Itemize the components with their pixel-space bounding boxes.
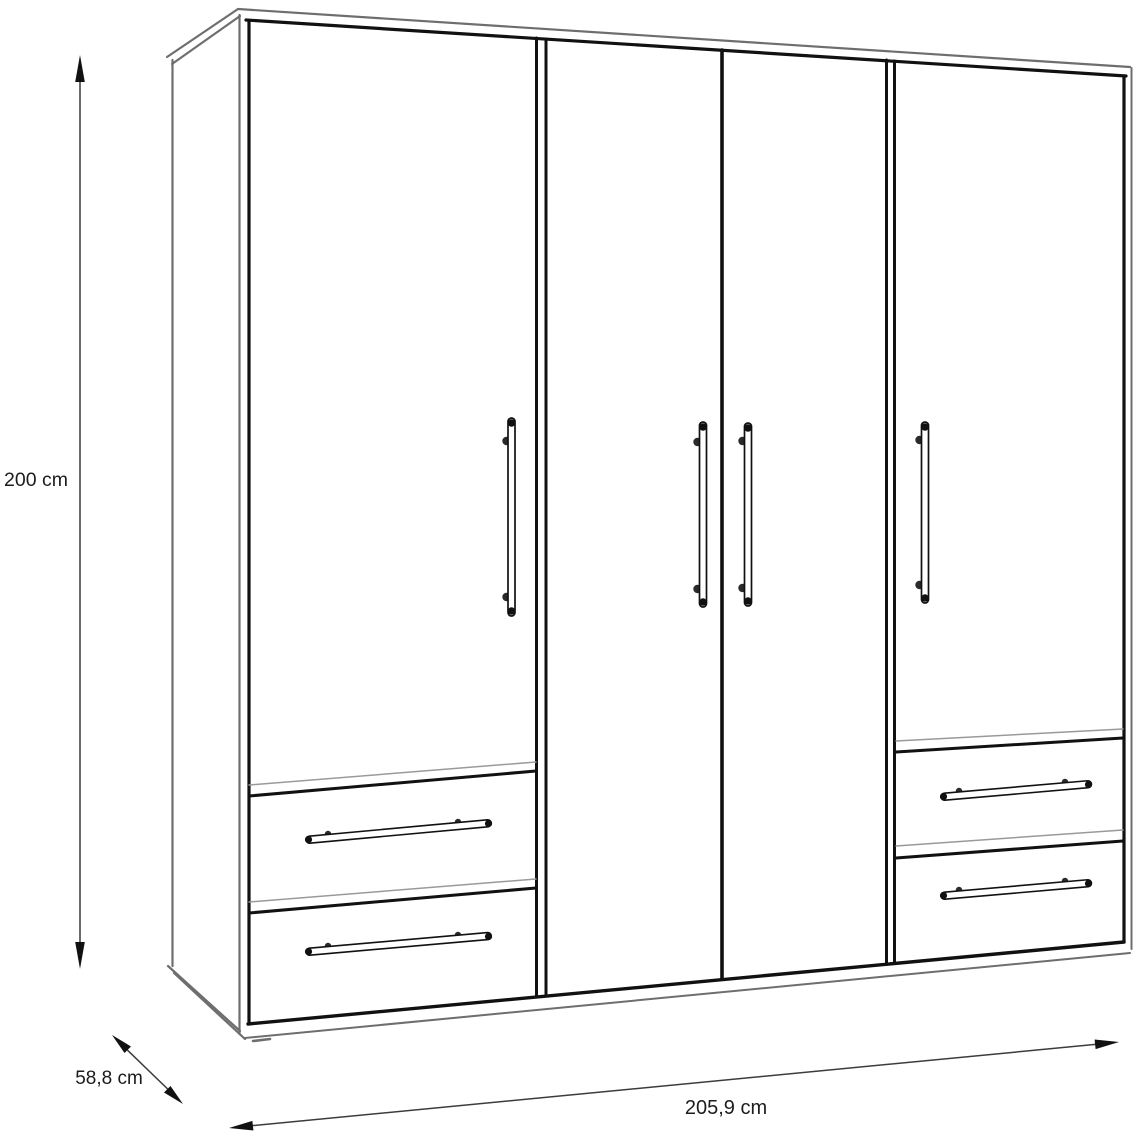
drawer-left-top-handle [305, 819, 492, 844]
drawer-left-divider [249, 888, 536, 913]
drawer-right-bottom-handle [940, 878, 1092, 900]
depth-dimension: 58,8 cm [75, 1035, 183, 1104]
front-foot [253, 1039, 270, 1041]
drawer-right-top-edge [896, 738, 1123, 752]
door-divisions [537, 38, 895, 997]
depth-label: 58,8 cm [75, 1068, 143, 1089]
front-frame-edges [249, 22, 1132, 1023]
door-2-handle [693, 422, 706, 607]
drawer-left-bottom-handle [305, 932, 492, 956]
height-arrowhead-top [75, 55, 85, 82]
drawer-right-top-handle [940, 779, 1092, 801]
side-panel [167, 9, 245, 1039]
width-dimension: 205,9 cm [229, 1040, 1119, 1131]
wardrobe-dimension-diagram: 200 cm 58,8 cm 205,9 cm [0, 0, 1136, 1136]
height-dimension: 200 cm [4, 55, 85, 969]
door-4-handle [915, 422, 928, 603]
wardrobe-drawing [167, 9, 1132, 1041]
height-label: 200 cm [4, 469, 68, 491]
top-panel [238, 9, 1130, 76]
base-plinth [245, 942, 1130, 1041]
height-arrowhead-bottom [75, 942, 85, 969]
door-1-handle [502, 418, 515, 616]
drawing-canvas: 200 cm 58,8 cm 205,9 cm [0, 0, 1136, 1136]
width-arrowhead-right [1095, 1040, 1119, 1050]
drawer-left-top-edge [249, 771, 536, 796]
door-3-handle [738, 423, 751, 606]
left-drawer-section [249, 762, 536, 913]
width-arrowhead-left [229, 1121, 253, 1131]
width-label: 205,9 cm [685, 1097, 767, 1119]
